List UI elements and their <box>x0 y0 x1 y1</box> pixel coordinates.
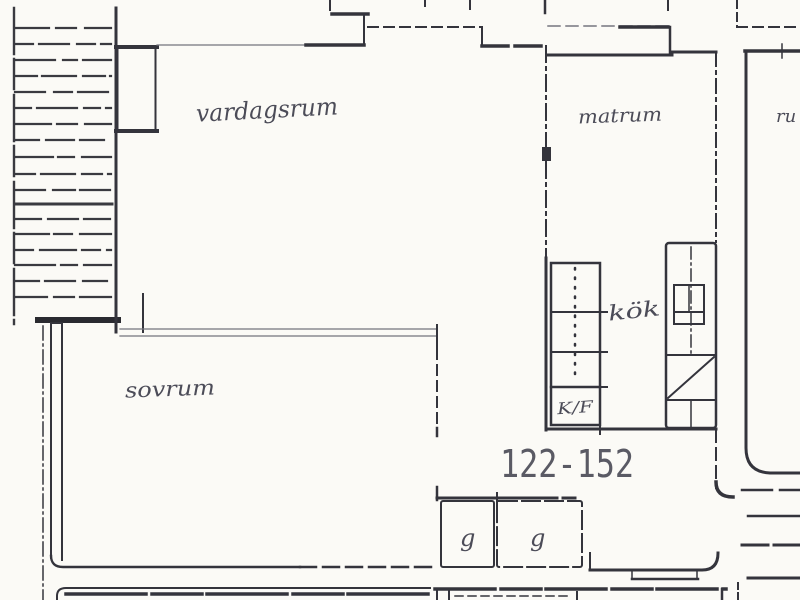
bedroom-walls <box>51 323 437 567</box>
room-label-living-room: vardagsrum <box>195 92 338 127</box>
wardrobes <box>437 493 582 567</box>
living-room-walls <box>116 0 668 332</box>
room-label-neighbor-partial: ru <box>776 106 796 127</box>
counter-diagonal-unit <box>668 357 714 398</box>
fridge-freezer-label: K/F <box>555 397 595 419</box>
floor-plan-page: vardagsrum matrum kök sovrum ru g g K/F … <box>0 0 800 600</box>
room-label-kitchen: kök <box>607 296 661 325</box>
unit-number-label: 122-152 <box>500 442 634 486</box>
wardrobe-right-label: g <box>530 524 545 552</box>
room-label-dining-room: matrum <box>578 104 663 129</box>
dining-room-walls <box>548 26 716 242</box>
balcony-closet-box <box>116 47 157 131</box>
wardrobe-left-label: g <box>460 524 475 552</box>
floor-plan-drawing: vardagsrum matrum kök sovrum ru g g K/F … <box>0 0 800 600</box>
neighbor-unit-walls <box>737 0 800 600</box>
balcony-hatching <box>14 8 118 324</box>
room-label-bedroom: sovrum <box>125 375 216 402</box>
